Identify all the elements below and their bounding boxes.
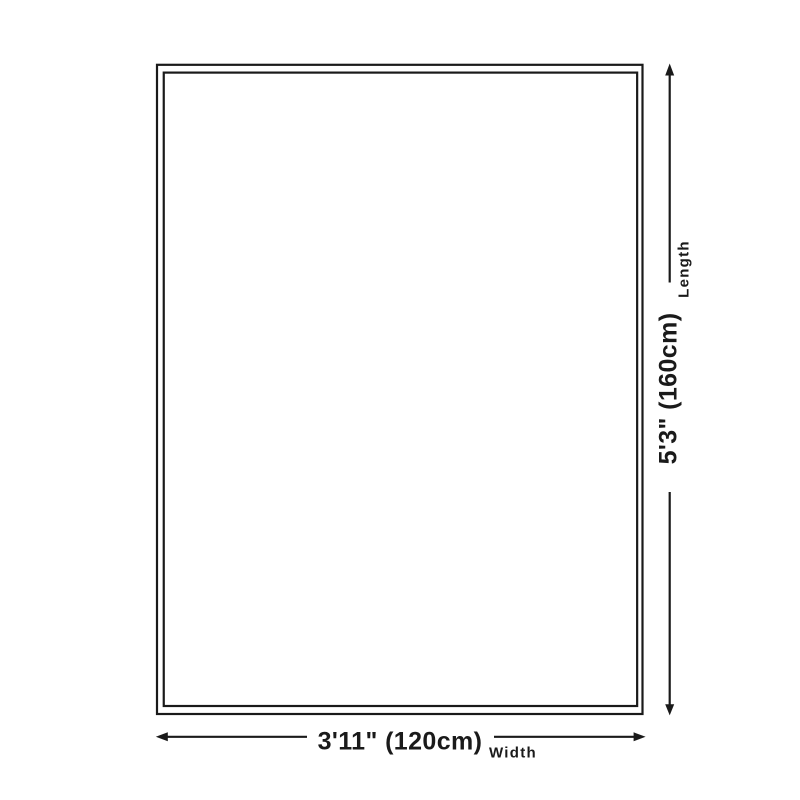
svg-text:Width: Width: [489, 745, 537, 762]
svg-text:3'11" (120cm): 3'11" (120cm): [318, 727, 483, 755]
svg-text:Length: Length: [676, 240, 693, 298]
svg-text:5'3" (160cm): 5'3" (160cm): [655, 313, 683, 465]
